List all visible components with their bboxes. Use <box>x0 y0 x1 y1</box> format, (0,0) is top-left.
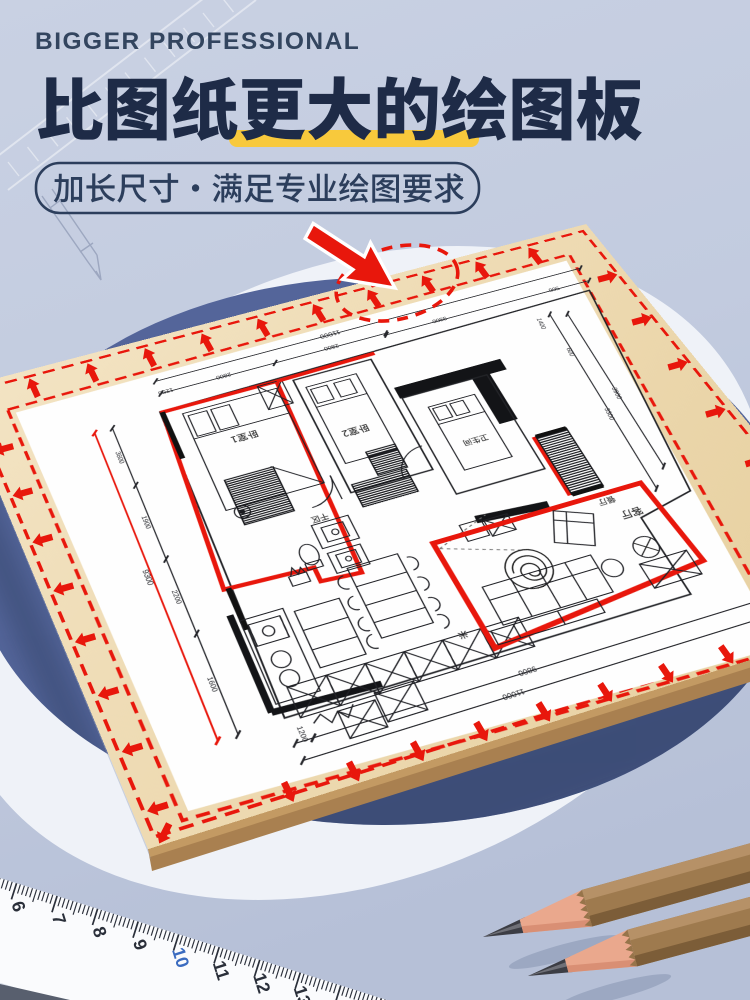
svg-text:BIGGER PROFESSIONAL: BIGGER PROFESSIONAL <box>35 28 360 55</box>
